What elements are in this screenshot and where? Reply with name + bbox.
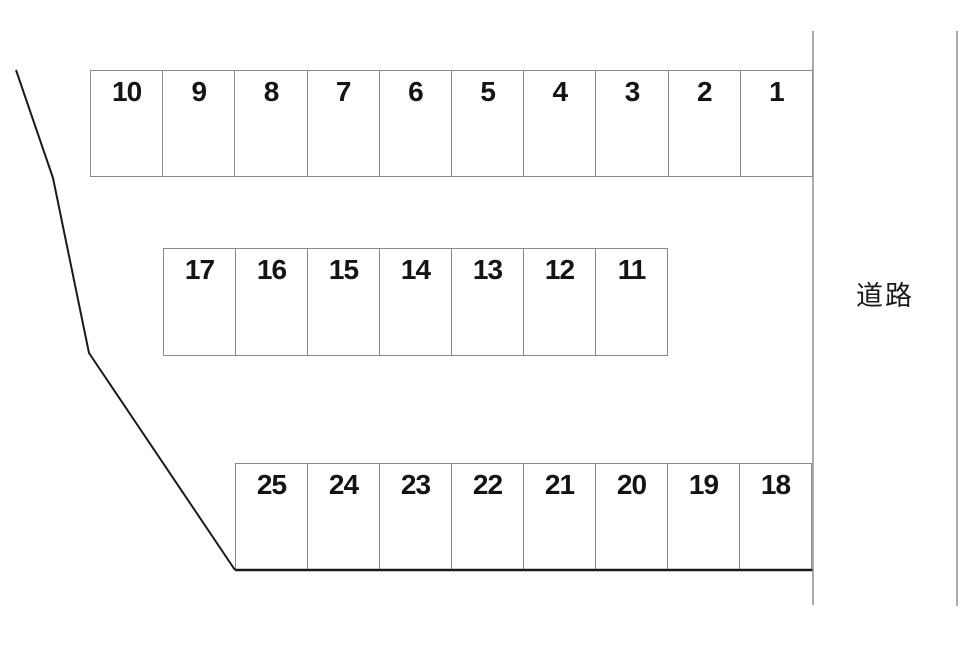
parking-space-3: 3 xyxy=(596,71,668,176)
space-number: 5 xyxy=(480,78,495,106)
space-number: 12 xyxy=(545,256,574,284)
space-number: 2 xyxy=(697,78,712,106)
parking-space-24: 24 xyxy=(308,464,380,569)
space-number: 13 xyxy=(473,256,502,284)
parking-space-25: 25 xyxy=(236,464,308,569)
parking-space-20: 20 xyxy=(596,464,668,569)
space-number: 4 xyxy=(553,78,568,106)
space-number: 16 xyxy=(257,256,286,284)
parking-row-top: 10 9 8 7 6 5 4 3 2 1 xyxy=(90,70,813,177)
parking-space-11: 11 xyxy=(596,249,667,355)
parking-space-14: 14 xyxy=(380,249,452,355)
parking-lot-diagram: 10 9 8 7 6 5 4 3 2 1 17 16 15 14 13 12 1… xyxy=(0,0,980,649)
space-number: 19 xyxy=(689,471,718,499)
parking-space-19: 19 xyxy=(668,464,740,569)
space-number: 22 xyxy=(473,471,502,499)
parking-space-13: 13 xyxy=(452,249,524,355)
space-number: 15 xyxy=(329,256,358,284)
parking-space-18: 18 xyxy=(740,464,811,569)
parking-space-1: 1 xyxy=(741,71,812,176)
parking-row-bottom: 25 24 23 22 21 20 19 18 xyxy=(235,463,812,570)
parking-space-5: 5 xyxy=(452,71,524,176)
parking-row-middle: 17 16 15 14 13 12 11 xyxy=(163,248,668,356)
parking-space-16: 16 xyxy=(236,249,308,355)
space-number: 11 xyxy=(618,256,646,284)
road-label: 道路 xyxy=(856,282,956,312)
space-number: 10 xyxy=(112,78,141,106)
space-number: 3 xyxy=(625,78,640,106)
space-number: 24 xyxy=(329,471,358,499)
space-number: 21 xyxy=(545,471,574,499)
parking-space-6: 6 xyxy=(380,71,452,176)
space-number: 23 xyxy=(401,471,430,499)
space-number: 18 xyxy=(761,471,790,499)
parking-space-21: 21 xyxy=(524,464,596,569)
space-number: 25 xyxy=(257,471,286,499)
parking-space-4: 4 xyxy=(524,71,596,176)
parking-space-9: 9 xyxy=(163,71,235,176)
parking-space-22: 22 xyxy=(452,464,524,569)
space-number: 9 xyxy=(192,78,207,106)
parking-space-10: 10 xyxy=(91,71,163,176)
parking-space-17: 17 xyxy=(164,249,236,355)
parking-space-12: 12 xyxy=(524,249,596,355)
parking-space-23: 23 xyxy=(380,464,452,569)
space-number: 20 xyxy=(617,471,646,499)
parking-space-7: 7 xyxy=(308,71,380,176)
space-number: 1 xyxy=(769,78,784,106)
space-number: 8 xyxy=(264,78,279,106)
parking-space-15: 15 xyxy=(308,249,380,355)
parking-space-8: 8 xyxy=(235,71,307,176)
space-number: 6 xyxy=(408,78,423,106)
space-number: 7 xyxy=(336,78,351,106)
space-number: 14 xyxy=(401,256,430,284)
parking-space-2: 2 xyxy=(669,71,741,176)
space-number: 17 xyxy=(185,256,214,284)
